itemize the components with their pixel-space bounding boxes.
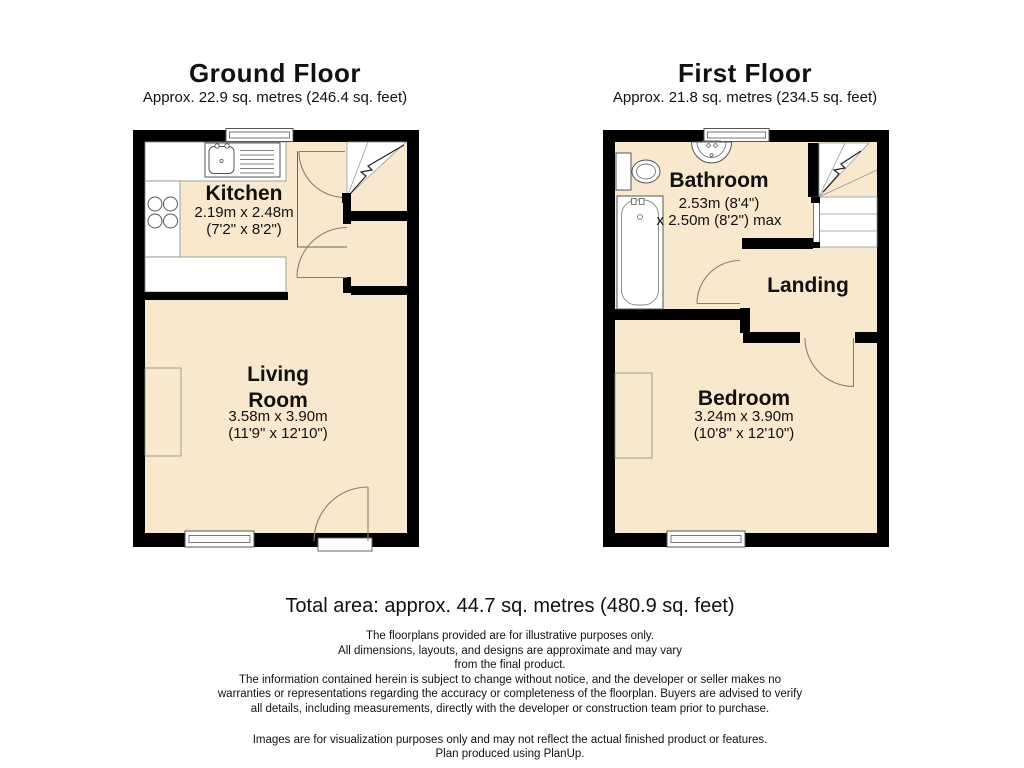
disclaimer-block: The floorplans provided are for illustra…	[112, 629, 908, 717]
bathroom-dims-line2: x 2.50m (8'2") max	[614, 213, 824, 230]
total-area-text: Total area: approx. 44.7 sq. metres (480…	[110, 595, 910, 618]
bedroom-dims-imperial: (10'8" x 12'10")	[654, 425, 834, 442]
alcove	[615, 373, 652, 458]
produced-by-note: Plan produced using PlanUp.	[112, 747, 908, 762]
bathroom-window	[704, 129, 769, 142]
bathroom-dims-line1: 2.53m (8'4")	[614, 196, 824, 213]
bedroom-dims: 3.24m x 3.90m (10'8" x 12'10")	[654, 408, 834, 443]
kitchen-dims-imperial: (7'2" x 8'2")	[154, 221, 334, 238]
kitchen-dims-metric: 2.19m x 2.48m	[154, 204, 334, 221]
bathroom-dims: 2.53m (8'4") x 2.50m (8'2") max	[614, 196, 824, 229]
disclaimer-line: The information contained herein is subj…	[112, 673, 908, 688]
first-floor-title: First Floor	[545, 58, 945, 89]
disclaimer-line: The floorplans provided are for illustra…	[112, 629, 908, 644]
kitchen-sink-icon	[205, 143, 280, 177]
disclaimer-line: All dimensions, layouts, and designs are…	[112, 644, 908, 659]
ground-floor-title: Ground Floor	[75, 58, 475, 89]
living-room-label: Living Room	[218, 362, 338, 414]
disclaimer-line: from the final product.	[112, 658, 908, 673]
bathroom-label: Bathroom	[619, 168, 819, 194]
disclaimer-line: warranties or representations regarding …	[112, 687, 908, 702]
disclaimer-line: all details, including measurements, dir…	[112, 702, 908, 717]
first-floor-area: Approx. 21.8 sq. metres (234.5 sq. feet)	[545, 89, 945, 106]
living-room-dims-metric: 3.58m x 3.90m	[188, 408, 368, 425]
landing-label: Landing	[738, 273, 878, 299]
ground-floor-area: Approx. 22.9 sq. metres (246.4 sq. feet)	[75, 89, 475, 106]
living-room-dims-imperial: (11'9" x 12'10")	[188, 425, 368, 442]
kitchen-window	[226, 129, 293, 142]
newel-post	[342, 193, 351, 203]
living-room-window	[185, 531, 254, 547]
newel-post	[811, 242, 820, 248]
images-note: Images are for visualization purposes on…	[112, 733, 908, 748]
bedroom-dims-metric: 3.24m x 3.90m	[654, 408, 834, 425]
alcove	[145, 368, 181, 456]
kitchen-dims: 2.19m x 2.48m (7'2" x 8'2")	[154, 204, 334, 239]
floorplan-page: Ground Floor Approx. 22.9 sq. metres (24…	[0, 0, 1024, 768]
living-room-dims: 3.58m x 3.90m (11'9" x 12'10")	[188, 408, 368, 443]
bedroom-window	[667, 531, 745, 547]
